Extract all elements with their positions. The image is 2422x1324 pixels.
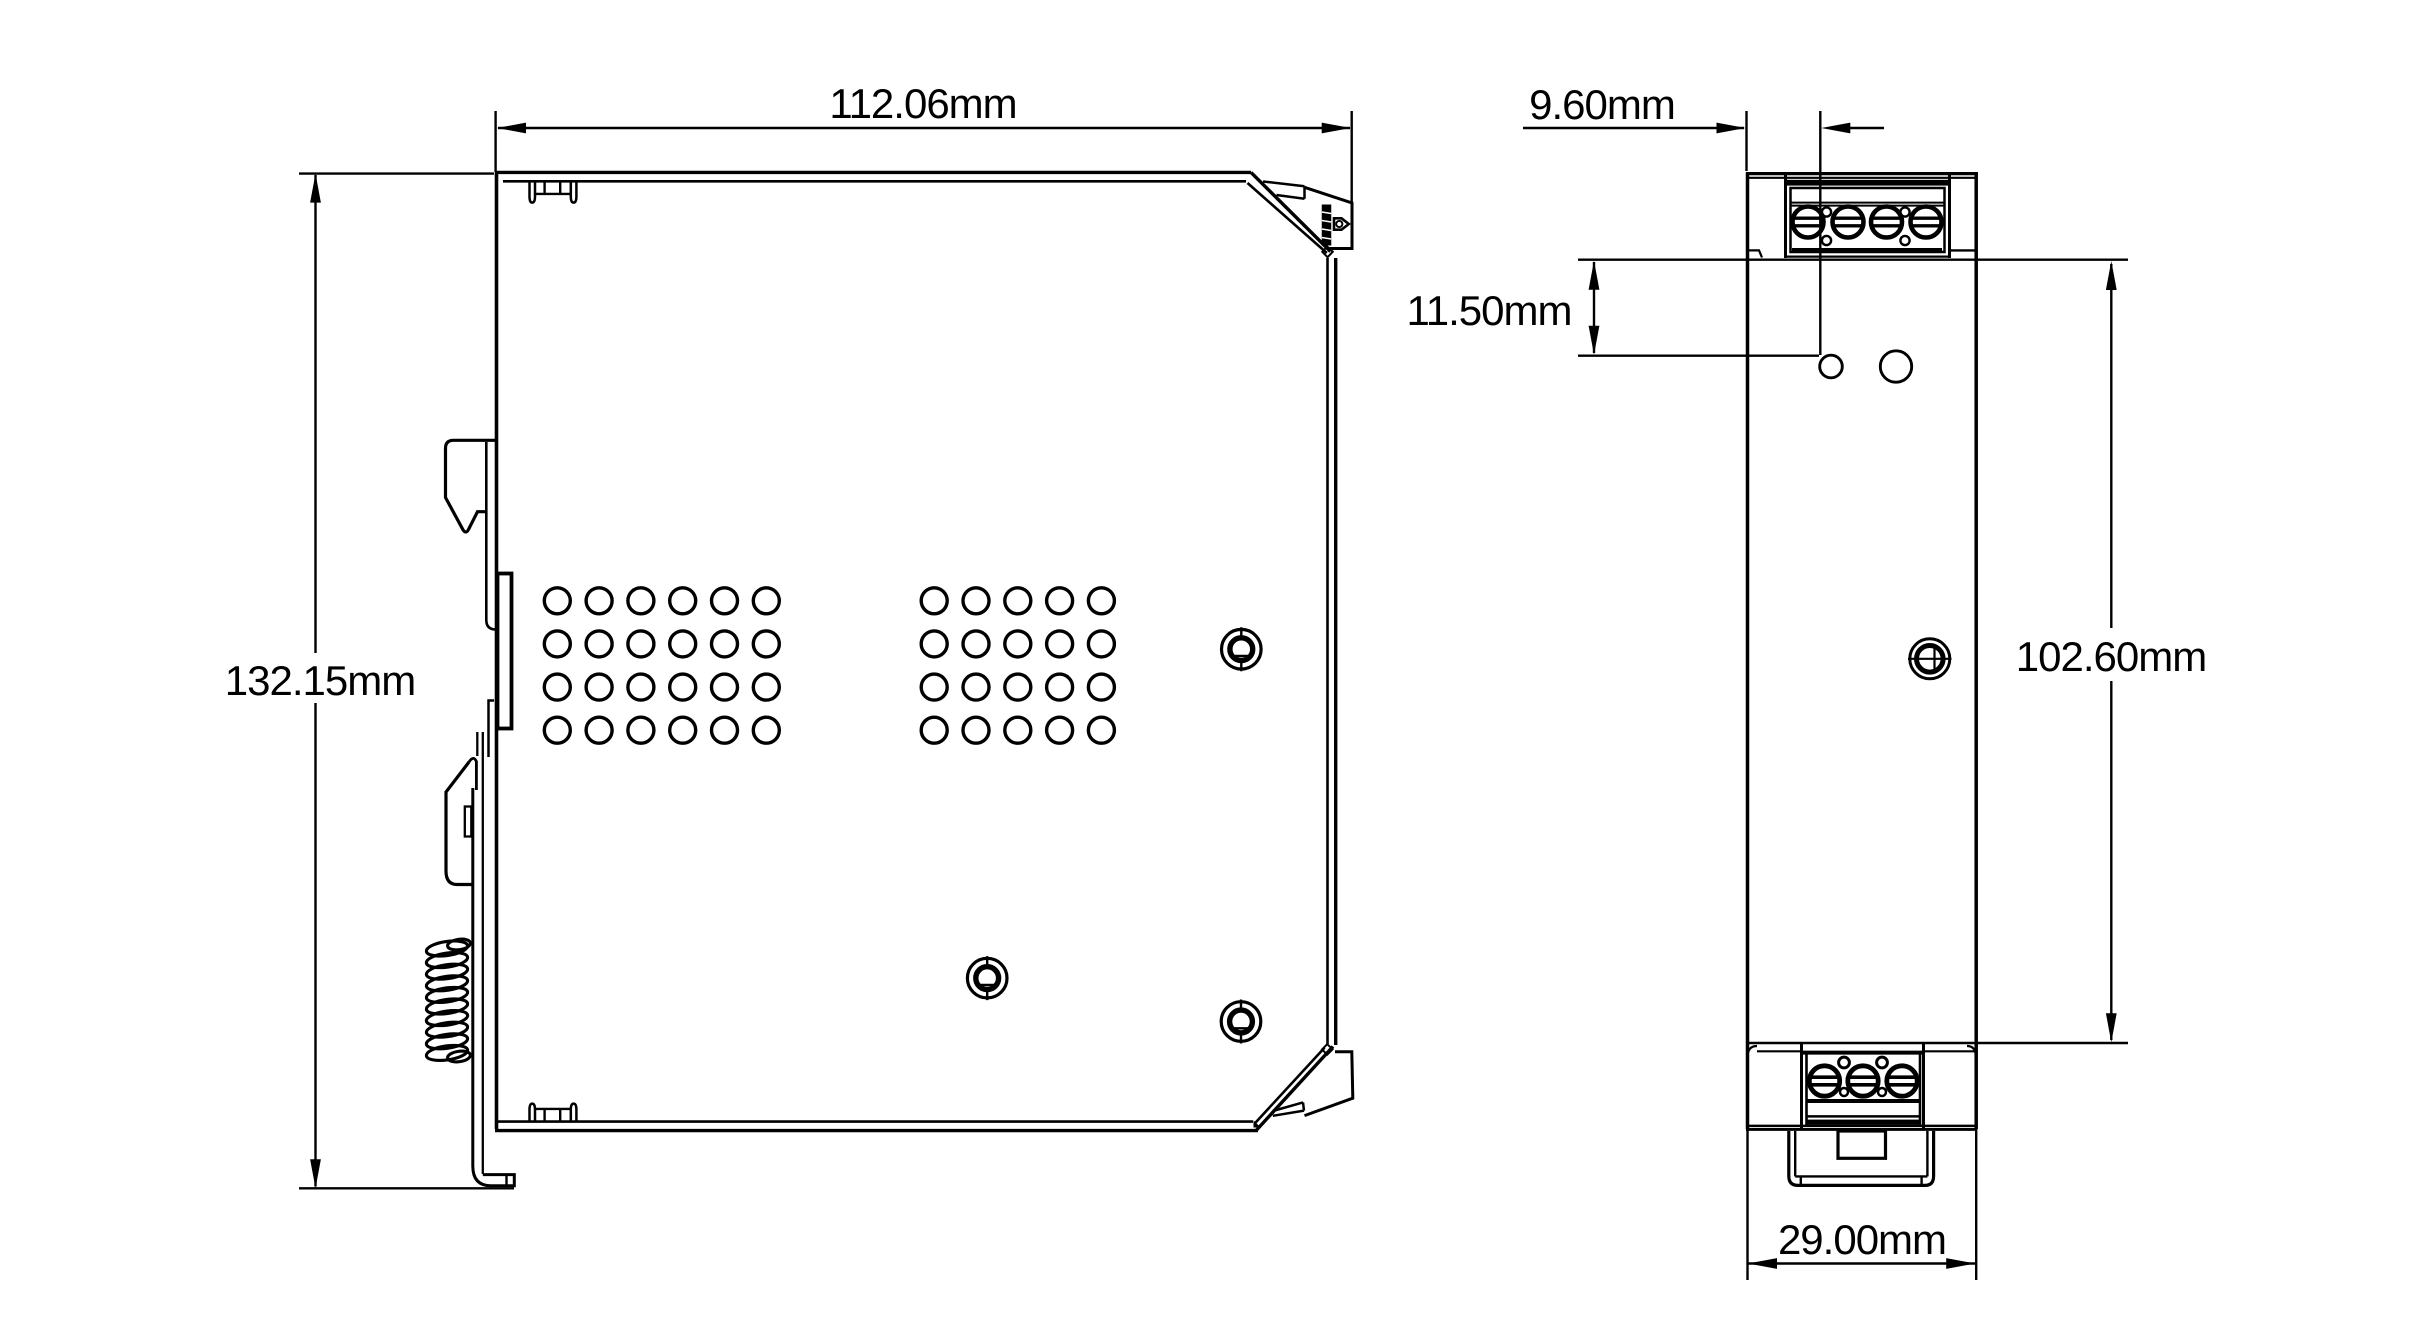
svg-text:29.00mm: 29.00mm <box>1778 1216 1946 1263</box>
svg-text:112.06mm: 112.06mm <box>829 80 1016 127</box>
svg-text:11.50mm: 11.50mm <box>1407 287 1572 334</box>
svg-text:102.60mm: 102.60mm <box>2016 633 2206 680</box>
svg-text:132.15mm: 132.15mm <box>225 657 415 704</box>
svg-text:9.60mm: 9.60mm <box>1529 81 1675 128</box>
